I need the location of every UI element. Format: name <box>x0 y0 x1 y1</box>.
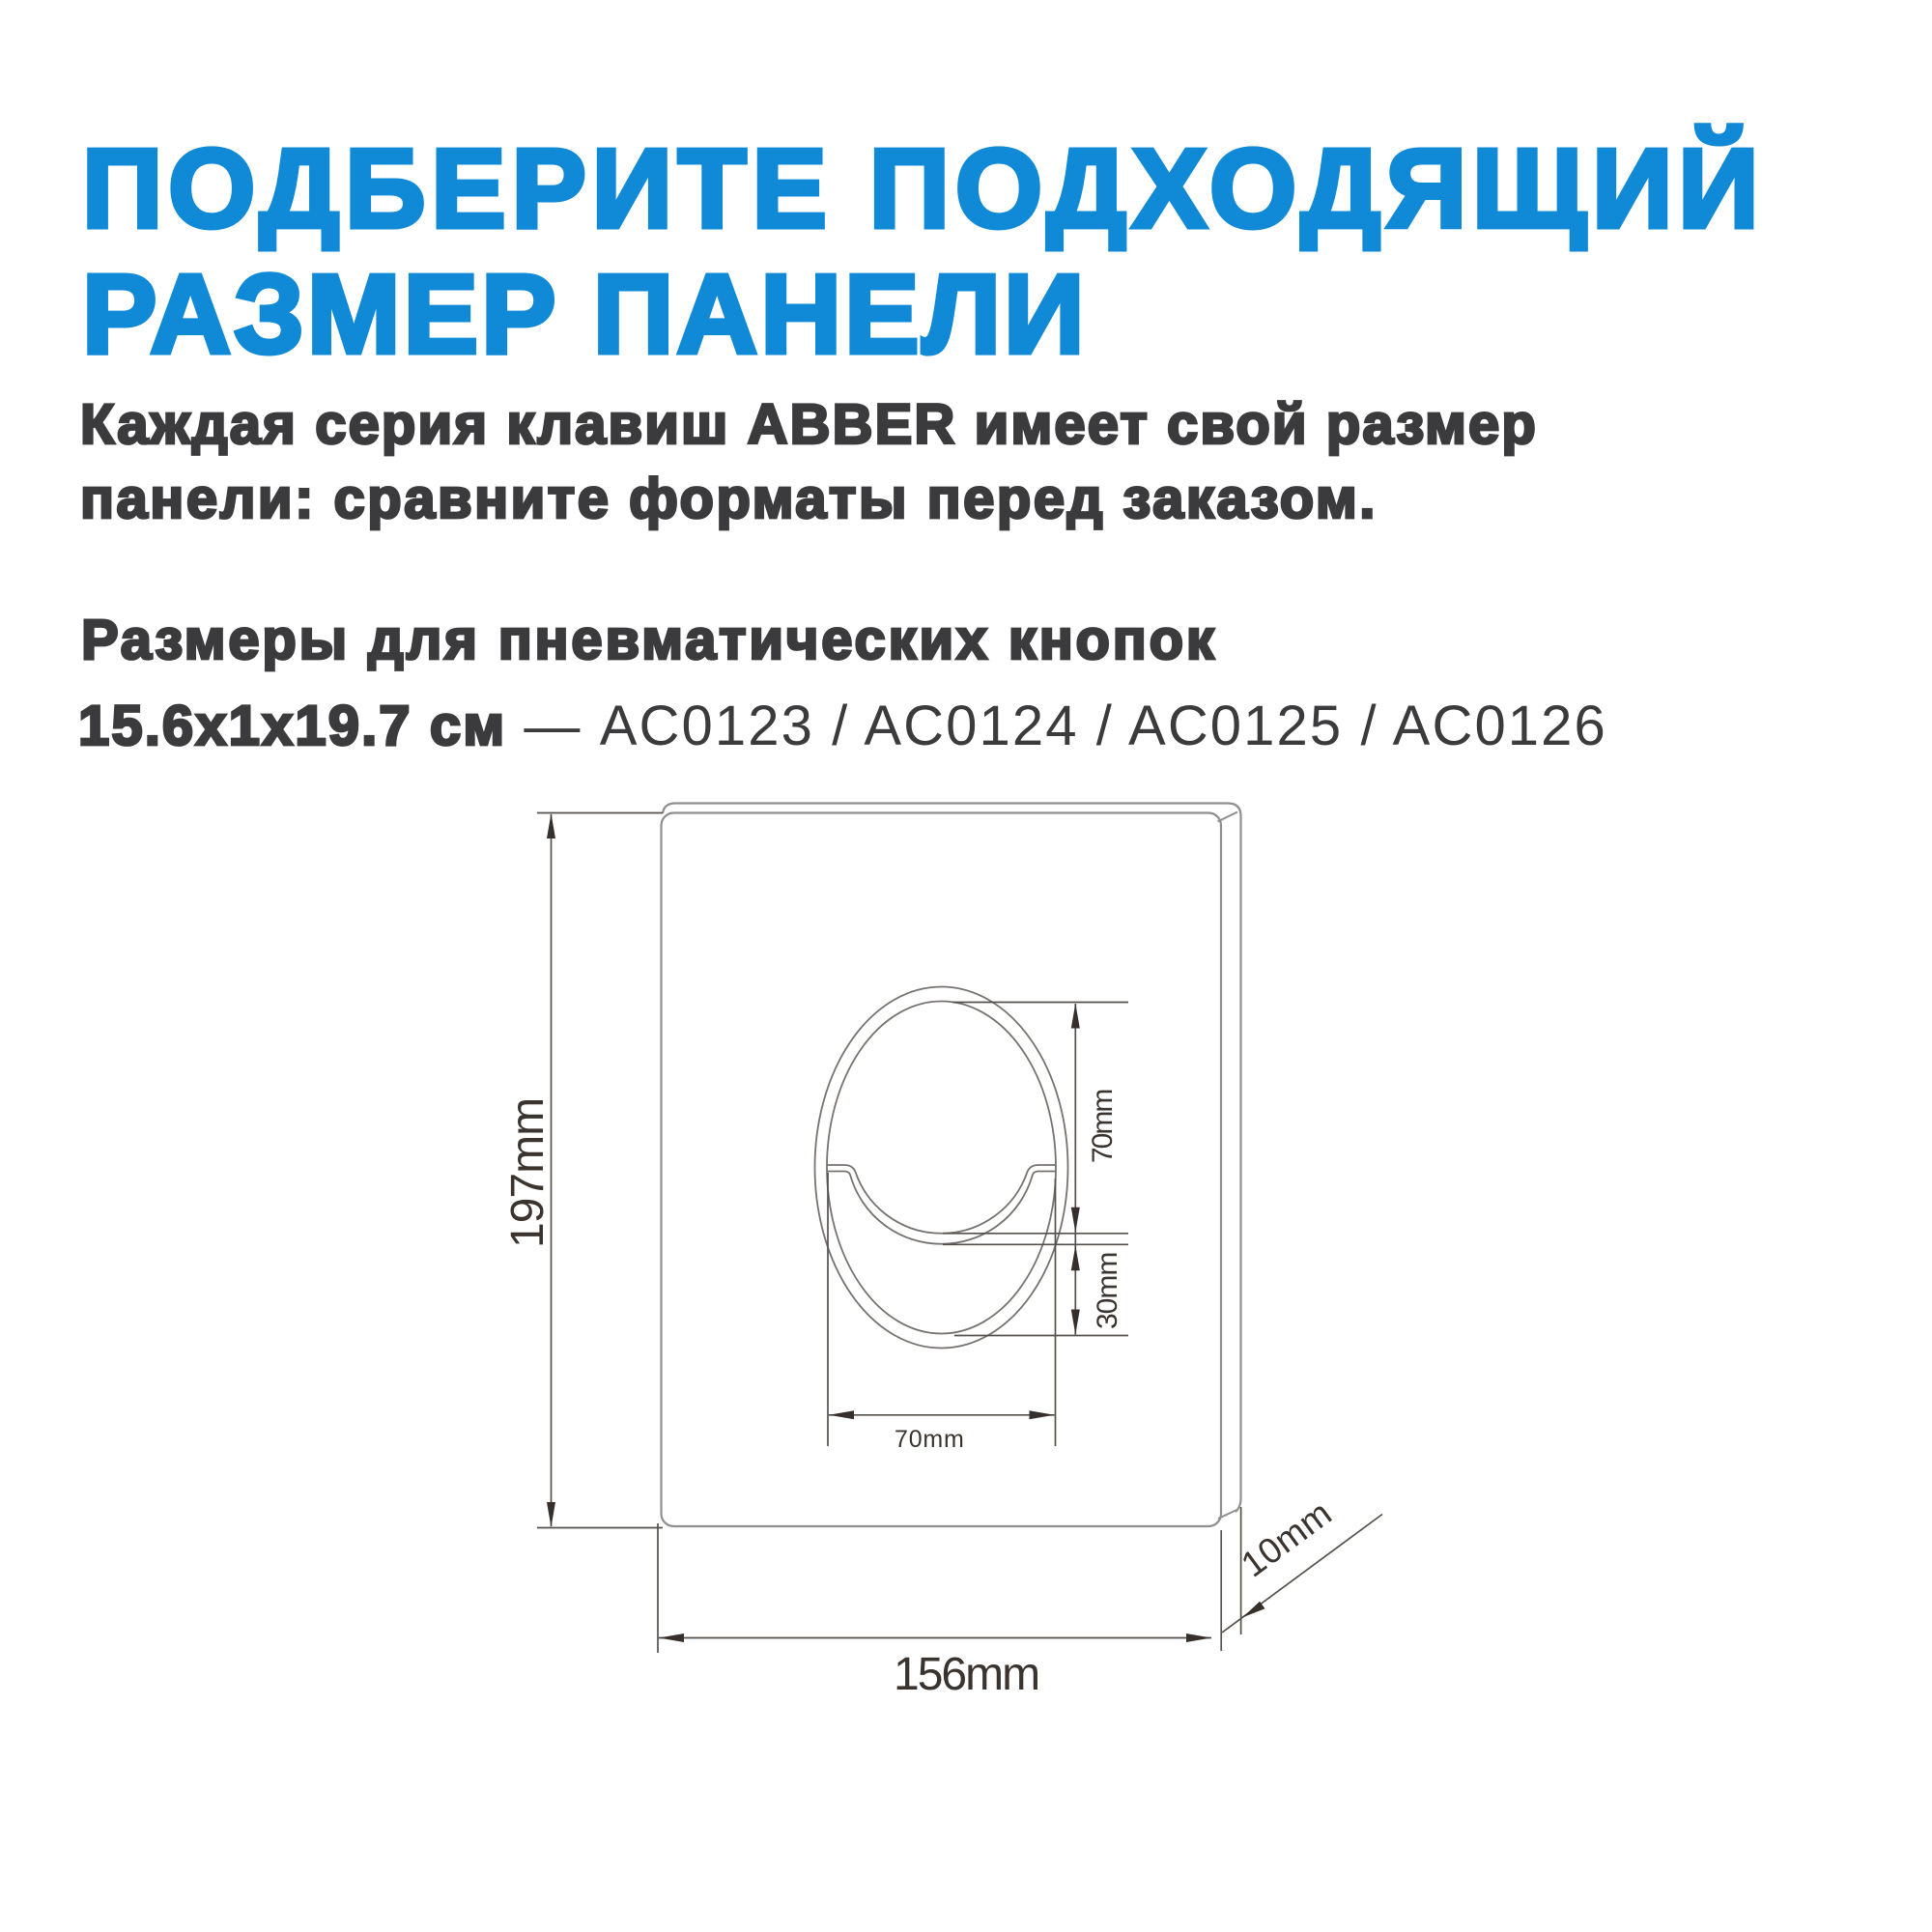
svg-text:70mm: 70mm <box>1087 1090 1119 1163</box>
svg-text:197mm: 197mm <box>502 1098 554 1248</box>
svg-text:10mm: 10mm <box>1234 1492 1339 1584</box>
svg-text:156mm: 156mm <box>894 1649 1038 1700</box>
svg-text:70mm: 70mm <box>895 1426 965 1453</box>
svg-text:30mm: 30mm <box>1092 1253 1123 1329</box>
